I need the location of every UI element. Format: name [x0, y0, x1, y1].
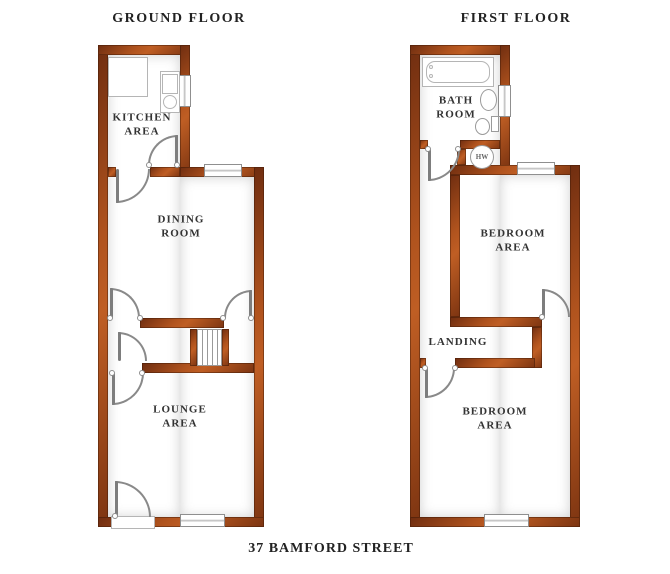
gf-kitchen-dining-wall — [150, 167, 180, 177]
toilet-bowl — [475, 118, 490, 135]
hinge-dot — [112, 513, 118, 519]
gf-stairs-wall-right — [222, 329, 229, 366]
room-label-lounge: LOUNGE AREA — [153, 403, 207, 432]
floorplan-canvas: GROUND FLOOR FIRST FLOOR — [0, 0, 670, 574]
kitchen-sink-bowl — [163, 95, 177, 109]
ff-bedroom-middle-wall-bottom — [450, 317, 542, 327]
gf-stairs-wall-left — [190, 329, 197, 366]
hinge-dot — [107, 315, 113, 321]
gf-lounge-door-leaf — [112, 373, 115, 405]
gf-front-door-threshold — [111, 516, 155, 529]
gf-dining-door-leaf — [116, 169, 119, 203]
staircase — [197, 329, 222, 366]
gf-front-door-leaf — [115, 481, 118, 517]
ff-bedroom-middle-window — [517, 162, 555, 175]
bath-tap — [429, 65, 433, 69]
room-label-bathroom: BATH ROOM — [436, 94, 475, 123]
ff-outer-wall-left — [410, 45, 420, 527]
hinge-dot — [174, 162, 180, 168]
first-floor-title: FIRST FLOOR — [461, 11, 572, 27]
hinge-dot — [137, 315, 143, 321]
property-address: 37 BAMFORD STREET — [248, 541, 414, 557]
hinge-dot — [139, 370, 145, 376]
room-label-bedroom-middle: BEDROOM AREA — [480, 227, 545, 256]
gf-outer-wall-top — [98, 45, 190, 55]
hot-water-cylinder-label: HW — [476, 153, 488, 161]
hinge-dot — [452, 365, 458, 371]
gf-kitchen-door-leaf — [175, 135, 178, 165]
toilet-cistern — [491, 116, 499, 132]
ff-bedroom-front-window — [484, 514, 529, 527]
hinge-dot — [146, 162, 152, 168]
bath-tub — [426, 61, 490, 83]
kitchen-appliance — [162, 74, 178, 94]
gf-hall-door-leaf-left — [110, 288, 113, 318]
gf-hall-inner-door-leaf — [118, 332, 121, 361]
ff-bathroom-door-leaf — [428, 149, 431, 181]
gf-outer-wall-right — [254, 167, 264, 527]
room-label-landing: LANDING — [429, 335, 488, 349]
gf-outer-wall-left — [98, 45, 108, 527]
room-label-kitchen: KITCHEN AREA — [113, 111, 172, 140]
hinge-dot — [422, 365, 428, 371]
hinge-dot — [248, 315, 254, 321]
bath-tap — [429, 74, 433, 78]
ff-landing-wall-bottom — [455, 358, 535, 368]
hinge-dot — [425, 146, 431, 152]
room-label-bedroom-front: BEDROOM AREA — [462, 405, 527, 434]
first-floor-plan: HW BATH ROOM BEDROOM AREA LANDING BEDROO… — [410, 45, 580, 532]
wash-basin — [480, 89, 497, 111]
hinge-dot — [539, 314, 545, 320]
gf-dining-window — [204, 164, 242, 177]
gf-hall-door-leaf-right — [249, 290, 252, 318]
hinge-dot — [109, 370, 115, 376]
hinge-dot — [220, 315, 226, 321]
kitchen-counter — [108, 57, 148, 97]
gf-kitchen-wall-right — [180, 45, 190, 177]
gf-lounge-window — [180, 514, 225, 527]
ff-bedroom-front-door-leaf — [425, 368, 428, 398]
hinge-dot — [455, 146, 461, 152]
ff-outer-wall-top — [410, 45, 510, 55]
ff-outer-wall-right — [570, 165, 580, 527]
ff-bedroom-middle-door-leaf — [542, 289, 545, 317]
ff-bedroom-middle-wall-left — [450, 175, 460, 317]
ff-step-wall — [450, 165, 580, 175]
gf-kitchen-dining-wall-stub — [108, 167, 116, 177]
ground-floor-title: GROUND FLOOR — [112, 11, 246, 27]
gf-hall-wall-top — [140, 318, 224, 328]
ground-floor-plan: KITCHEN AREA DINING ROOM LOUNGE AREA — [98, 45, 264, 532]
room-label-dining: DINING ROOM — [158, 213, 205, 242]
ff-bathroom-window — [498, 85, 511, 117]
